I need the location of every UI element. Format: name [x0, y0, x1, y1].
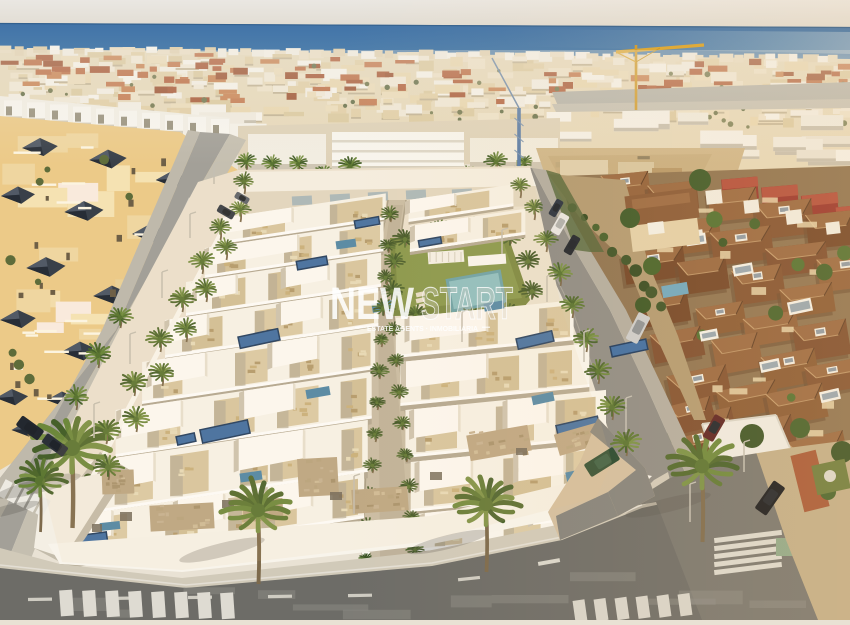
svg-text:NEW: NEW [330, 278, 414, 329]
svg-text:ESTATE AGENTS · INMOBILIARIA: ESTATE AGENTS · INMOBILIARIA [367, 324, 478, 333]
svg-text:START: START [421, 278, 513, 329]
